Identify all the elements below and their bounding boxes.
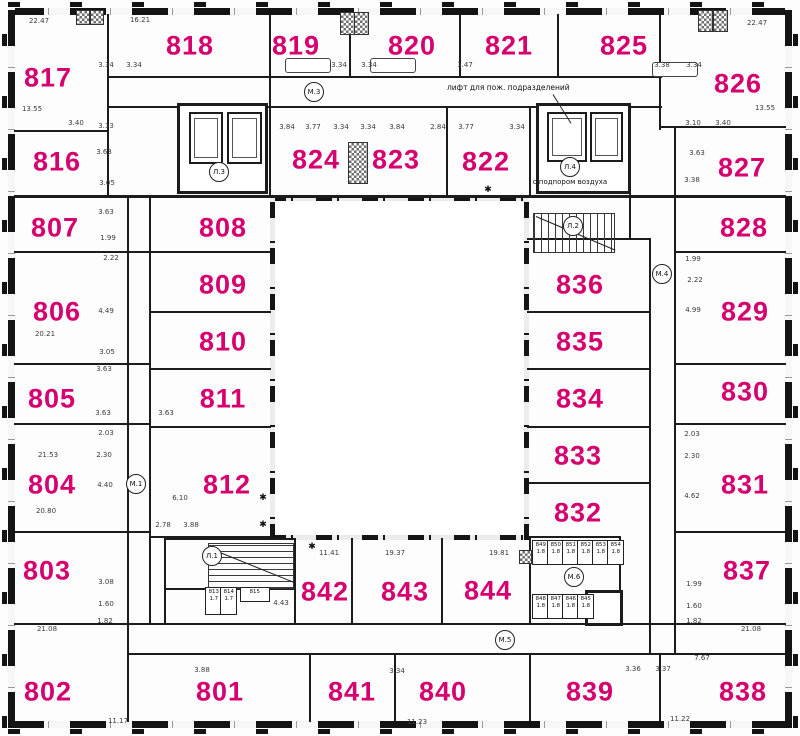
interior-wall	[529, 536, 621, 538]
dimension-label: 3.05	[99, 179, 115, 187]
storage-cell-number: 815	[250, 588, 260, 594]
interior-wall	[394, 655, 396, 722]
dimension-label: 22.47	[747, 19, 767, 27]
room-label-803: 803	[23, 556, 71, 587]
storage-cell-number: 852	[580, 541, 590, 547]
dimension-label: 3.34	[331, 61, 347, 69]
room-label-818: 818	[166, 31, 214, 62]
storage-cell-815: 815	[240, 587, 270, 602]
room-label-828: 828	[720, 213, 768, 244]
interior-wall	[674, 423, 786, 425]
dimension-label: 3.34	[509, 123, 525, 131]
interior-wall	[149, 368, 271, 370]
core-label-Л.2: Л.2	[563, 216, 583, 236]
interior-wall	[351, 538, 353, 625]
dimension-label: 2.03	[684, 430, 700, 438]
interior-wall	[107, 76, 662, 78]
vent-shaft	[76, 10, 90, 25]
dimension-label: 2.30	[684, 452, 700, 460]
interior-wall	[309, 655, 311, 722]
core-note: с подпором воздуха	[533, 178, 607, 186]
room-label-838: 838	[719, 677, 767, 708]
outer-wall-top	[8, 8, 792, 15]
dimension-label: 3.13	[98, 122, 114, 130]
storage-cell-area: 1.8	[566, 602, 575, 608]
dimension-label: 4.43	[273, 599, 289, 607]
interior-wall	[14, 423, 149, 425]
dimension-label: 21.08	[37, 625, 57, 633]
dimension-label: 3.63	[158, 409, 174, 417]
storage-cell-number: 854	[610, 541, 620, 547]
facade-ticks-left	[2, 8, 7, 728]
core-label-М.6: М.6	[564, 567, 584, 587]
courtyard-wall-bottom	[270, 535, 529, 540]
room-label-843: 843	[381, 577, 429, 608]
interior-wall	[149, 251, 271, 253]
dimension-label: 4.62	[684, 492, 700, 500]
dimension-label: 21.08	[741, 625, 761, 633]
dimension-label: 1.99	[100, 234, 116, 242]
room-label-834: 834	[556, 384, 604, 415]
interior-wall	[14, 251, 149, 253]
interior-wall	[127, 653, 786, 655]
elevator-car	[194, 118, 218, 158]
dimension-label: 1.82	[97, 617, 113, 625]
storage-cell-number: 845	[580, 595, 590, 601]
dimension-label: 2.22	[103, 254, 119, 262]
room-label-821: 821	[485, 31, 533, 62]
storage-cell-854: 8541.8	[607, 540, 624, 565]
dimension-label: 7.67	[694, 654, 710, 662]
dimension-label: 21.53	[38, 451, 58, 459]
asterisk-marker: ✱	[259, 520, 267, 530]
dimension-label: 3.34	[98, 61, 114, 69]
vent-shaft	[90, 10, 104, 25]
storage-cell-area: 1.8	[611, 548, 620, 554]
room-label-835: 835	[556, 327, 604, 358]
interior-wall	[14, 531, 149, 533]
dimension-label: 19.37	[385, 549, 405, 557]
room-label-823: 823	[372, 145, 420, 176]
dimension-label: 3.40	[715, 119, 731, 127]
dimension-label: 6.10	[172, 494, 188, 502]
dimension-label: 3.10	[685, 119, 701, 127]
room-label-833: 833	[554, 441, 602, 472]
asterisk-marker: ✱	[259, 493, 267, 503]
room-label-837: 837	[723, 556, 771, 587]
dimension-label: 3.47	[457, 61, 473, 69]
dimension-label: 20.21	[35, 330, 55, 338]
dimension-label: 3.37	[655, 665, 671, 673]
interior-wall	[107, 14, 109, 196]
interior-wall	[441, 538, 443, 625]
interior-wall	[674, 363, 786, 365]
storage-cell-area: 1.7	[209, 595, 218, 601]
storage-cell-area: 1.8	[536, 602, 545, 608]
interior-wall	[149, 197, 151, 625]
core-label-М.4: М.4	[652, 264, 672, 284]
interior-wall	[527, 426, 651, 428]
dimension-label: 2.78	[155, 521, 171, 529]
room-label-820: 820	[388, 31, 436, 62]
dimension-label: 3.88	[183, 521, 199, 529]
room-label-812: 812	[203, 470, 251, 501]
elevator-shaft	[590, 112, 623, 162]
elevator-shaft	[189, 112, 223, 164]
interior-wall	[127, 197, 129, 625]
asterisk-marker: ✱	[484, 185, 492, 195]
interior-wall	[14, 130, 108, 132]
storage-cell-area: 1.8	[536, 548, 545, 554]
storage-cell-area: 1.8	[581, 548, 590, 554]
room-label-841: 841	[328, 677, 376, 708]
elevator-shaft	[547, 112, 587, 162]
storage-cell-area: 1.8	[566, 548, 575, 554]
room-label-802: 802	[24, 677, 72, 708]
outer-wall-left	[8, 8, 15, 728]
dimension-label: 3.34	[389, 667, 405, 675]
dimension-label: 1.60	[98, 600, 114, 608]
room-label-804: 804	[28, 470, 76, 501]
dimension-label: 19.81	[489, 549, 509, 557]
core-label-Л.1: Л.1	[202, 546, 222, 566]
storage-cell-area: 1.8	[596, 548, 605, 554]
dimension-label: 3.88	[194, 666, 210, 674]
dimension-label: 3.34	[126, 61, 142, 69]
room-label-831: 831	[721, 470, 769, 501]
vent-shaft	[698, 10, 713, 32]
interior-wall	[649, 238, 651, 655]
interior-wall	[527, 482, 651, 484]
storage-cell-845: 8451.8	[577, 594, 594, 619]
interior-wall	[527, 368, 651, 370]
interior-wall	[14, 195, 786, 198]
interior-wall	[14, 363, 149, 365]
outer-wall-right	[785, 8, 792, 728]
room-label-827: 827	[718, 153, 766, 184]
elevator-shaft	[227, 112, 262, 164]
room-label-816: 816	[33, 147, 81, 178]
room-label-830: 830	[721, 377, 769, 408]
interior-wall	[164, 538, 296, 540]
room-label-817: 817	[24, 63, 72, 94]
elevator-car	[595, 118, 618, 156]
dimension-label: 3.34	[686, 61, 702, 69]
interior-wall	[149, 426, 271, 428]
interior-wall	[446, 108, 448, 196]
dimension-label: 4.40	[97, 481, 113, 489]
interior-wall	[164, 538, 166, 625]
dimension-label: 3.84	[279, 123, 295, 131]
room-label-801: 801	[196, 677, 244, 708]
storage-cell-number: 813	[208, 588, 218, 594]
room-label-842: 842	[301, 577, 349, 608]
dimension-label: 11.22	[670, 715, 690, 723]
dimension-label: 3.63	[98, 208, 114, 216]
interior-wall	[149, 311, 271, 313]
dimension-label: 4.49	[98, 307, 114, 315]
dimension-label: 3.63	[689, 149, 705, 157]
dimension-label: 11.23	[407, 718, 427, 726]
dimension-label: 3.84	[389, 123, 405, 131]
dimension-label: 3.36	[625, 665, 641, 673]
interior-wall	[527, 311, 651, 313]
elevator-car	[232, 118, 257, 158]
room-label-807: 807	[31, 213, 79, 244]
floor-plan: лифт для пож. подразделений 817818819820…	[0, 0, 800, 736]
dimension-label: 1.99	[686, 580, 702, 588]
dimension-label: 3.34	[360, 123, 376, 131]
storage-cell-814: 8141.7	[220, 587, 237, 615]
core-label-М.1: М.1	[126, 474, 146, 494]
dimension-label: 16.21	[130, 16, 150, 24]
dimension-label: 2.84	[430, 123, 446, 131]
core-label-М.3: М.3	[304, 82, 324, 102]
dimension-label: 3.63	[96, 365, 112, 373]
interior-wall	[674, 251, 786, 253]
storage-cell-area: 1.8	[551, 548, 560, 554]
vent-shaft	[713, 10, 728, 32]
room-label-809: 809	[199, 270, 247, 301]
dimension-label: 3.38	[684, 176, 700, 184]
dimension-label: 2.30	[96, 451, 112, 459]
dimension-label: 3.77	[458, 123, 474, 131]
vent-shaft	[348, 142, 368, 184]
interior-wall	[14, 623, 786, 625]
vent-shaft	[340, 12, 355, 35]
storage-cell-number: 849	[535, 541, 545, 547]
facade-ticks-top	[8, 2, 792, 7]
dimension-label: 3.63	[95, 409, 111, 417]
room-label-819: 819	[272, 31, 320, 62]
room-label-805: 805	[28, 384, 76, 415]
dimension-label: 22.47	[29, 17, 49, 25]
dimension-label: 13.55	[755, 104, 775, 112]
dimension-label: 2.03	[98, 429, 114, 437]
dimension-label: 3.05	[99, 348, 115, 356]
dimension-label: 1.60	[686, 602, 702, 610]
storage-cell-number: 814	[223, 588, 233, 594]
room-label-826: 826	[714, 69, 762, 100]
vent-shaft	[354, 12, 369, 35]
storage-cell-area: 1.8	[581, 602, 590, 608]
core-label-Л.4: Л.4	[560, 157, 580, 177]
interior-wall	[127, 623, 129, 722]
storage-cell-area: 1.8	[551, 602, 560, 608]
interior-wall	[529, 108, 531, 196]
dimension-label: 2.22	[687, 276, 703, 284]
storage-cell-number: 847	[550, 595, 560, 601]
dimension-label: 20.80	[36, 507, 56, 515]
room-label-806: 806	[33, 297, 81, 328]
storage-cell-area: 1.7	[224, 595, 233, 601]
vent-shaft	[519, 550, 532, 564]
elevator-car	[552, 118, 582, 156]
dimension-label: 3.08	[98, 578, 114, 586]
dimension-label: 3.34	[333, 123, 349, 131]
dimension-label: 4.99	[685, 306, 701, 314]
fire-elevator-note: лифт для пож. подразделений	[447, 83, 570, 92]
dimension-label: 1.99	[685, 255, 701, 263]
room-label-839: 839	[566, 677, 614, 708]
storage-cell-number: 853	[595, 541, 605, 547]
room-label-825: 825	[600, 31, 648, 62]
core-label-Л.3: Л.3	[209, 162, 229, 182]
facade-ticks-right	[793, 8, 798, 728]
dimension-label: 3.63	[96, 148, 112, 156]
room-label-832: 832	[554, 498, 602, 529]
inner-courtyard	[275, 201, 524, 535]
interior-wall	[529, 655, 531, 722]
asterisk-marker: ✱	[308, 542, 316, 552]
interior-wall	[674, 531, 786, 533]
dimension-label: 3.38	[654, 61, 670, 69]
bathtub	[285, 58, 331, 73]
room-label-836: 836	[556, 270, 604, 301]
interior-wall	[674, 128, 676, 655]
storage-cell-number: 851	[565, 541, 575, 547]
room-label-810: 810	[199, 327, 247, 358]
dimension-label: 11.41	[319, 549, 339, 557]
core-label-М.5: М.5	[495, 630, 515, 650]
dimension-label: 11.17	[108, 717, 128, 725]
room-label-829: 829	[721, 297, 769, 328]
dimension-label: 3.77	[305, 123, 321, 131]
room-label-808: 808	[199, 213, 247, 244]
dimension-label: 13.55	[22, 105, 42, 113]
storage-cell-number: 850	[550, 541, 560, 547]
interior-wall	[557, 14, 559, 78]
facade-ticks-bottom	[8, 729, 792, 734]
room-label-811: 811	[200, 384, 247, 415]
storage-cell-number: 848	[535, 595, 545, 601]
room-label-840: 840	[419, 677, 467, 708]
dimension-label: 3.40	[68, 119, 84, 127]
room-label-824: 824	[292, 145, 340, 176]
storage-cell-number: 846	[565, 595, 575, 601]
room-label-844: 844	[464, 576, 512, 607]
dimension-label: 1.82	[686, 617, 702, 625]
dimension-label: 3.34	[361, 61, 377, 69]
room-label-822: 822	[462, 147, 510, 178]
